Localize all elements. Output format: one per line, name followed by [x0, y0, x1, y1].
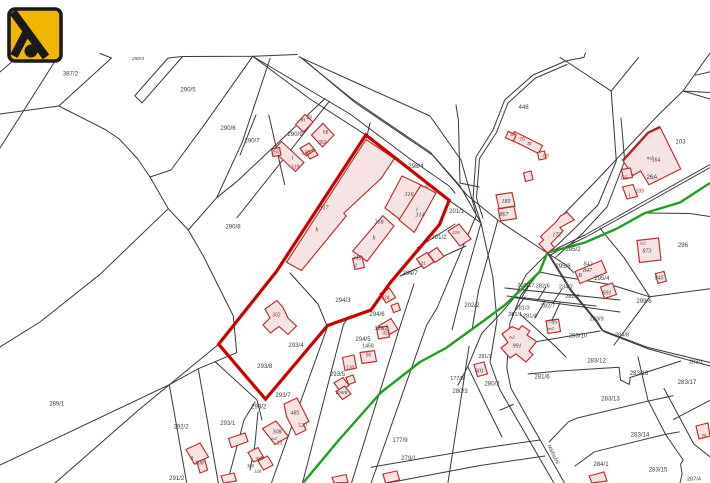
svg-text:282/7: 282/7 [541, 304, 555, 310]
svg-text:280/3: 280/3 [452, 388, 468, 395]
svg-text:290/6: 290/6 [220, 125, 236, 132]
svg-text:352: 352 [318, 140, 327, 146]
svg-text:283/14: 283/14 [631, 432, 650, 439]
svg-text:302: 302 [272, 313, 281, 319]
svg-text:842: 842 [584, 261, 593, 268]
svg-text:325: 325 [382, 331, 391, 337]
svg-text:12: 12 [277, 441, 283, 447]
svg-text:46: 46 [510, 132, 515, 137]
svg-text:m2: m2 [548, 326, 554, 331]
svg-text:845: 845 [655, 275, 664, 282]
svg-text:293/4: 293/4 [288, 342, 304, 349]
svg-text:282/6: 282/6 [536, 284, 550, 290]
svg-text:189: 189 [636, 189, 645, 195]
svg-text:294/3: 294/3 [335, 297, 351, 304]
svg-text:873: 873 [643, 249, 652, 255]
svg-text:250: 250 [271, 150, 280, 156]
svg-text:70: 70 [519, 137, 525, 143]
svg-text:283/1: 283/1 [689, 360, 703, 366]
svg-text:387/2: 387/2 [63, 71, 79, 78]
svg-text:991: 991 [513, 344, 522, 350]
svg-text:293/7: 293/7 [275, 392, 291, 399]
svg-text:130: 130 [346, 366, 355, 372]
svg-text:281/1: 281/1 [479, 354, 492, 360]
svg-text:287/4: 287/4 [687, 477, 701, 483]
svg-text:316: 316 [404, 192, 414, 198]
svg-text:847: 847 [583, 267, 593, 274]
svg-text:290/8: 290/8 [225, 224, 241, 231]
svg-text:283/16: 283/16 [630, 370, 649, 377]
svg-text:601: 601 [475, 369, 484, 375]
svg-text:283/12: 283/12 [587, 358, 606, 365]
svg-text:n.30: n.30 [421, 184, 430, 189]
svg-text:283/17: 283/17 [678, 379, 697, 386]
svg-text:m2: m2 [509, 335, 515, 340]
svg-text:293/1: 293/1 [220, 420, 236, 427]
svg-text:429: 429 [452, 230, 460, 235]
svg-text:m2: m2 [640, 241, 646, 246]
svg-text:308: 308 [272, 430, 282, 436]
svg-text:300: 300 [247, 465, 255, 470]
svg-text:279/1: 279/1 [401, 455, 417, 462]
svg-text:318: 318 [374, 220, 384, 226]
svg-text:290/5: 290/5 [180, 87, 196, 94]
svg-text:293/5: 293/5 [330, 371, 346, 378]
svg-text:289/1: 289/1 [49, 401, 65, 408]
svg-text:294/6: 294/6 [369, 311, 385, 318]
svg-text:295/8: 295/8 [555, 263, 571, 270]
svg-text:284/8: 284/8 [615, 333, 629, 339]
svg-text:1458: 1458 [362, 344, 374, 350]
svg-text:281/4: 281/4 [523, 314, 537, 320]
svg-text:448: 448 [519, 104, 530, 111]
svg-text:26: 26 [701, 434, 707, 440]
svg-text:n: n [191, 456, 194, 462]
svg-text:298/4: 298/4 [408, 163, 424, 170]
svg-text:485: 485 [291, 410, 300, 417]
svg-text:202/17: 202/17 [517, 283, 534, 289]
svg-text:284/1: 284/1 [593, 461, 609, 468]
svg-text:283/15: 283/15 [649, 467, 668, 474]
svg-text:294/7: 294/7 [402, 270, 418, 277]
svg-text:292/2: 292/2 [173, 424, 189, 431]
svg-text:96: 96 [366, 353, 372, 359]
svg-text:293/2: 293/2 [251, 404, 267, 411]
svg-text:299/6: 299/6 [636, 298, 652, 305]
svg-text:290/4: 290/4 [131, 56, 144, 62]
svg-text:281/6: 281/6 [534, 374, 550, 381]
svg-text:m2: m2 [647, 156, 654, 161]
svg-text:m: m [301, 118, 306, 124]
svg-text:324: 324 [381, 296, 390, 302]
svg-text:26A: 26A [646, 174, 658, 181]
svg-text:B: B [578, 273, 582, 279]
svg-text:290/7: 290/7 [244, 138, 260, 145]
svg-text:69: 69 [543, 154, 549, 160]
svg-text:68: 68 [323, 130, 329, 136]
svg-text:867: 867 [500, 212, 510, 218]
svg-text:h: h [373, 236, 376, 242]
svg-text:290/9: 290/9 [287, 131, 303, 138]
svg-text:201/2: 201/2 [431, 234, 447, 241]
svg-text:177/8: 177/8 [450, 376, 464, 382]
svg-text:293/8: 293/8 [257, 363, 273, 370]
svg-text:785: 785 [549, 320, 558, 326]
svg-text:172: 172 [552, 233, 561, 239]
svg-text:280/2: 280/2 [484, 381, 500, 388]
svg-text:308: 308 [194, 461, 204, 467]
svg-text:319: 319 [291, 165, 300, 171]
svg-text:295/2: 295/2 [565, 246, 581, 253]
svg-text:170: 170 [301, 151, 310, 157]
svg-text:m: m [527, 141, 532, 147]
svg-text:296: 296 [678, 242, 689, 249]
svg-text:177/9: 177/9 [392, 437, 408, 444]
svg-text:283/9: 283/9 [590, 317, 604, 323]
svg-text:204/8: 204/8 [336, 390, 348, 395]
svg-text:234/7: 234/7 [559, 285, 573, 291]
svg-text:h: h [316, 228, 319, 234]
svg-text:39: 39 [307, 115, 313, 121]
svg-text:120: 120 [298, 423, 307, 429]
svg-text:291/2: 291/2 [169, 475, 185, 482]
svg-text:281/3: 281/3 [516, 306, 530, 312]
svg-text:317: 317 [319, 206, 330, 212]
svg-text:283/13: 283/13 [601, 396, 620, 403]
svg-text:131: 131 [418, 261, 426, 266]
svg-text:166: 166 [620, 176, 629, 182]
svg-text:202/2: 202/2 [464, 302, 480, 309]
svg-text:295/4: 295/4 [594, 275, 610, 282]
svg-text:103: 103 [675, 139, 686, 146]
svg-text:283/10: 283/10 [569, 333, 588, 340]
svg-text:m2: m2 [379, 325, 385, 330]
svg-text:282/3: 282/3 [565, 294, 579, 300]
svg-text:201/1: 201/1 [449, 208, 465, 215]
svg-text:148: 148 [254, 470, 262, 475]
svg-text:185: 185 [502, 199, 511, 205]
svg-text:691: 691 [603, 291, 612, 297]
svg-text:m2: m2 [256, 455, 262, 460]
svg-text:294/5: 294/5 [355, 336, 371, 343]
svg-text:281/1: 281/1 [508, 312, 522, 318]
svg-text:315: 315 [352, 256, 362, 262]
